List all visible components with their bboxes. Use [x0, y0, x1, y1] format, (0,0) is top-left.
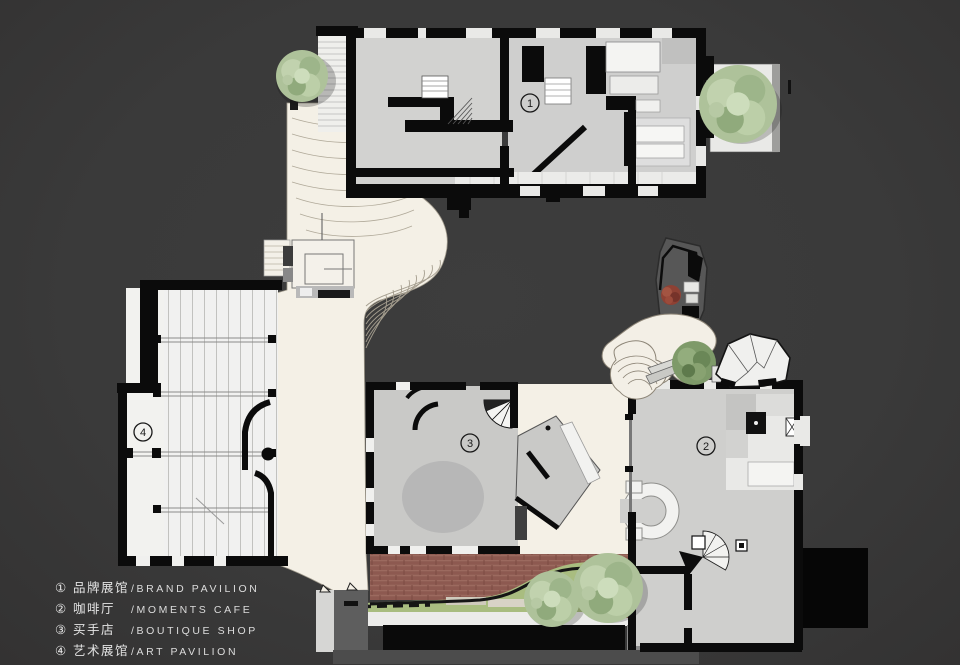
site-plan-canvas: 4 — [0, 0, 960, 665]
svg-text:3: 3 — [467, 438, 473, 450]
legend-item-moments-cafe: ② 咖啡厅 /MOMENTS CAFE — [55, 598, 259, 618]
svg-text:4: 4 — [140, 427, 146, 439]
round-rug — [402, 461, 484, 533]
roof-planter — [696, 56, 791, 152]
legend-label-zh: 品牌展馆 — [73, 577, 131, 596]
legend-symbol: ② — [55, 601, 73, 616]
column — [262, 448, 275, 461]
legend-label-zh: 买手店 — [73, 619, 131, 638]
legend-label-en: /ART PAVILION — [131, 646, 238, 658]
svg-text:1: 1 — [527, 98, 533, 110]
legend-symbol: ④ — [55, 643, 73, 658]
kitchen-block — [726, 394, 798, 490]
legend-label-zh: 咖啡厅 — [73, 598, 131, 617]
legend: ① 品牌展馆 /BRAND PAVILION ② 咖啡厅 /MOMENTS CA… — [55, 577, 259, 661]
legend-item-brand-pavilion: ① 品牌展馆 /BRAND PAVILION — [55, 577, 259, 597]
building-moments-cafe: 2 — [620, 380, 810, 652]
legend-item-boutique-shop: ③ 买手店 /BOUTIQUE SHOP — [55, 619, 259, 639]
planter-tree — [699, 65, 777, 143]
site-plan-drawing: 4 — [0, 0, 960, 665]
red-shrub — [661, 285, 681, 305]
terrace-tree — [276, 50, 328, 102]
legend-symbol: ③ — [55, 622, 73, 637]
legend-label-en: /BOUTIQUE SHOP — [131, 625, 258, 637]
legend-label-en: /BRAND PAVILION — [131, 583, 259, 595]
legend-label-en: /MOMENTS CAFE — [131, 604, 252, 616]
building-art-pavilion: 4 — [117, 280, 288, 566]
legend-label-zh: 艺术展馆 — [73, 640, 131, 659]
svg-text:2: 2 — [703, 441, 709, 453]
legend-item-art-pavilion: ④ 艺术展馆 /ART PAVILION — [55, 640, 259, 660]
courtyard-tree — [672, 341, 716, 385]
building-brand-pavilion: 1 — [346, 28, 706, 218]
legend-symbol: ① — [55, 580, 73, 595]
faceted-canopy — [712, 334, 790, 388]
